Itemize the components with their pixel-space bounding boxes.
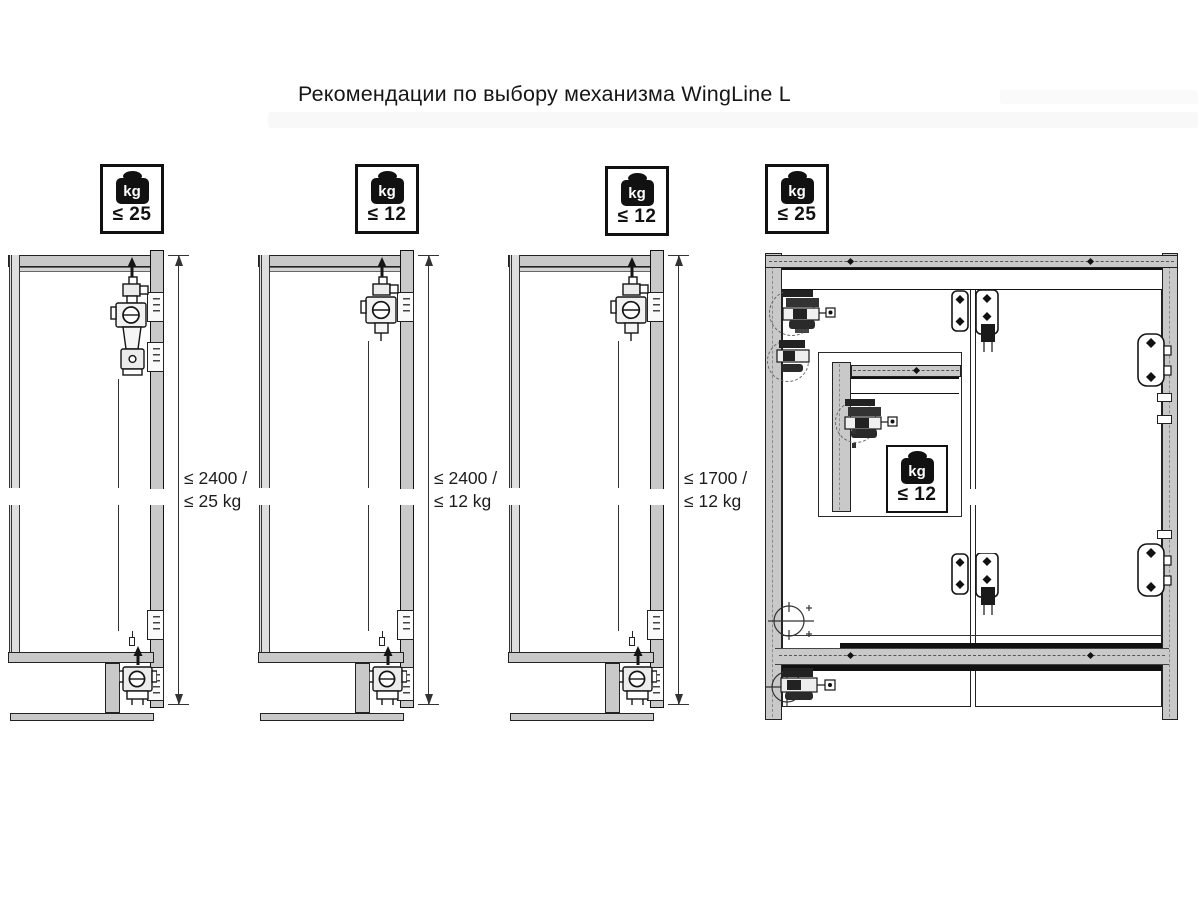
dimension-height: ≤ 1700 / bbox=[684, 467, 747, 490]
pivot-pin-icon bbox=[379, 637, 385, 646]
break-gap bbox=[967, 489, 979, 505]
center-line bbox=[769, 261, 1174, 262]
dimension-label: ≤ 2400 / ≤ 25 kg bbox=[184, 467, 247, 513]
base-support bbox=[605, 663, 620, 713]
base-support bbox=[105, 663, 120, 713]
top-runner-icon bbox=[781, 288, 837, 334]
side-wall bbox=[9, 505, 20, 652]
inset-top-rail bbox=[851, 365, 961, 377]
hinge-icon bbox=[1136, 330, 1172, 390]
top-runner-icon bbox=[843, 397, 899, 443]
side-wall bbox=[259, 255, 270, 488]
folding-door bbox=[650, 250, 664, 489]
hinge-icon bbox=[950, 553, 970, 595]
dimension-tick bbox=[168, 255, 189, 256]
bottom-carriage-icon bbox=[779, 664, 841, 706]
dimension-weight: ≤ 12 kg bbox=[434, 490, 497, 513]
bottom-guide-icon bbox=[619, 646, 657, 708]
dimension-weight: ≤ 25 kg bbox=[184, 490, 247, 513]
section-view-door-12kg: ≤ 2400 / ≤ 12 kg bbox=[258, 0, 520, 899]
arrowhead-icon bbox=[175, 255, 183, 266]
door-edge-line bbox=[618, 505, 619, 631]
arrow-up-icon bbox=[634, 646, 643, 665]
diagram-page: Рекомендации по выбору механизма WingLin… bbox=[0, 0, 1200, 899]
dimension-line bbox=[178, 255, 179, 705]
top-track bbox=[782, 268, 1162, 290]
weight-kg-icon: kg bbox=[901, 458, 934, 484]
pivot-pin-icon bbox=[129, 637, 135, 646]
mounting-plate bbox=[1157, 415, 1172, 424]
inset-top-track bbox=[851, 377, 959, 394]
hinge-icon bbox=[973, 290, 1003, 354]
door-edge-line bbox=[118, 505, 119, 631]
door-edge-line bbox=[368, 341, 369, 488]
arrowhead-icon bbox=[675, 255, 683, 266]
dimension-tick bbox=[168, 704, 189, 705]
mounting-plate bbox=[1157, 393, 1172, 402]
bottom-track-line bbox=[782, 635, 1162, 636]
detail-inset: kg ≤ 12 bbox=[818, 352, 962, 517]
bottom-panel bbox=[260, 713, 404, 721]
inset-hidden-edge bbox=[839, 364, 840, 510]
bottom-guide-icon bbox=[369, 646, 407, 708]
right-wall-hidden-edge bbox=[1169, 256, 1170, 717]
center-line bbox=[779, 655, 1165, 656]
side-wall bbox=[9, 255, 20, 488]
bottom-guide-icon bbox=[119, 646, 157, 708]
hinge-plate bbox=[647, 610, 664, 640]
section-view-door-1700: ≤ 1700 / ≤ 12 kg bbox=[508, 0, 770, 899]
folding-door bbox=[400, 250, 414, 489]
mounting-plate bbox=[1157, 530, 1172, 539]
arrow-up-icon bbox=[628, 257, 637, 277]
weight-badge-inset: kg ≤ 12 bbox=[886, 445, 948, 513]
dimension-weight: ≤ 12 kg bbox=[684, 490, 747, 513]
arrow-up-icon bbox=[384, 646, 393, 665]
hinge-plate bbox=[147, 610, 164, 640]
arrow-up-icon bbox=[378, 257, 387, 277]
dimension-label: ≤ 2400 / ≤ 12 kg bbox=[434, 467, 497, 513]
fold-mechanism-icon bbox=[608, 257, 652, 343]
dimension-line bbox=[428, 255, 429, 705]
screw-mark-icon bbox=[852, 429, 856, 434]
side-wall bbox=[509, 255, 520, 488]
right-door bbox=[975, 268, 1162, 707]
base-support bbox=[355, 663, 370, 713]
pivot-fitting-icon bbox=[775, 338, 821, 378]
door-edge-line bbox=[368, 505, 369, 631]
dimension-line bbox=[678, 255, 679, 705]
side-wall bbox=[259, 505, 270, 652]
dimension-tick bbox=[418, 704, 439, 705]
door-edge-line bbox=[618, 341, 619, 488]
door-edge-line bbox=[118, 379, 119, 488]
bottom-rail bbox=[775, 648, 1169, 665]
dimension-tick bbox=[668, 704, 689, 705]
fold-mechanism-icon bbox=[108, 257, 152, 379]
side-wall bbox=[509, 505, 520, 652]
dimension-height: ≤ 2400 / bbox=[184, 467, 247, 490]
arrow-up-icon bbox=[128, 257, 137, 277]
arrowhead-icon bbox=[425, 255, 433, 266]
bottom-panel bbox=[10, 713, 154, 721]
pivot-circle-icon bbox=[768, 600, 814, 642]
bottom-panel bbox=[510, 713, 654, 721]
hinge-icon bbox=[1136, 540, 1172, 600]
center-line bbox=[853, 370, 959, 371]
section-view-door-25kg: ≤ 2400 / ≤ 25 kg bbox=[8, 0, 270, 899]
fold-mechanism-icon bbox=[358, 257, 402, 343]
dimension-height: ≤ 2400 / bbox=[434, 467, 497, 490]
dimension-tick bbox=[418, 255, 439, 256]
weight-limit: ≤ 12 bbox=[898, 485, 937, 506]
hinge-plate bbox=[397, 610, 414, 640]
hinge-icon bbox=[950, 290, 970, 332]
dimension-label: ≤ 1700 / ≤ 12 kg bbox=[684, 467, 747, 513]
front-view-cabinet: kg ≤ 12 bbox=[765, 0, 1200, 899]
screw-mark-icon bbox=[852, 443, 856, 448]
dimension-tick bbox=[668, 255, 689, 256]
arrow-up-icon bbox=[134, 646, 143, 665]
hinge-icon bbox=[973, 553, 1003, 617]
pivot-pin-icon bbox=[629, 637, 635, 646]
